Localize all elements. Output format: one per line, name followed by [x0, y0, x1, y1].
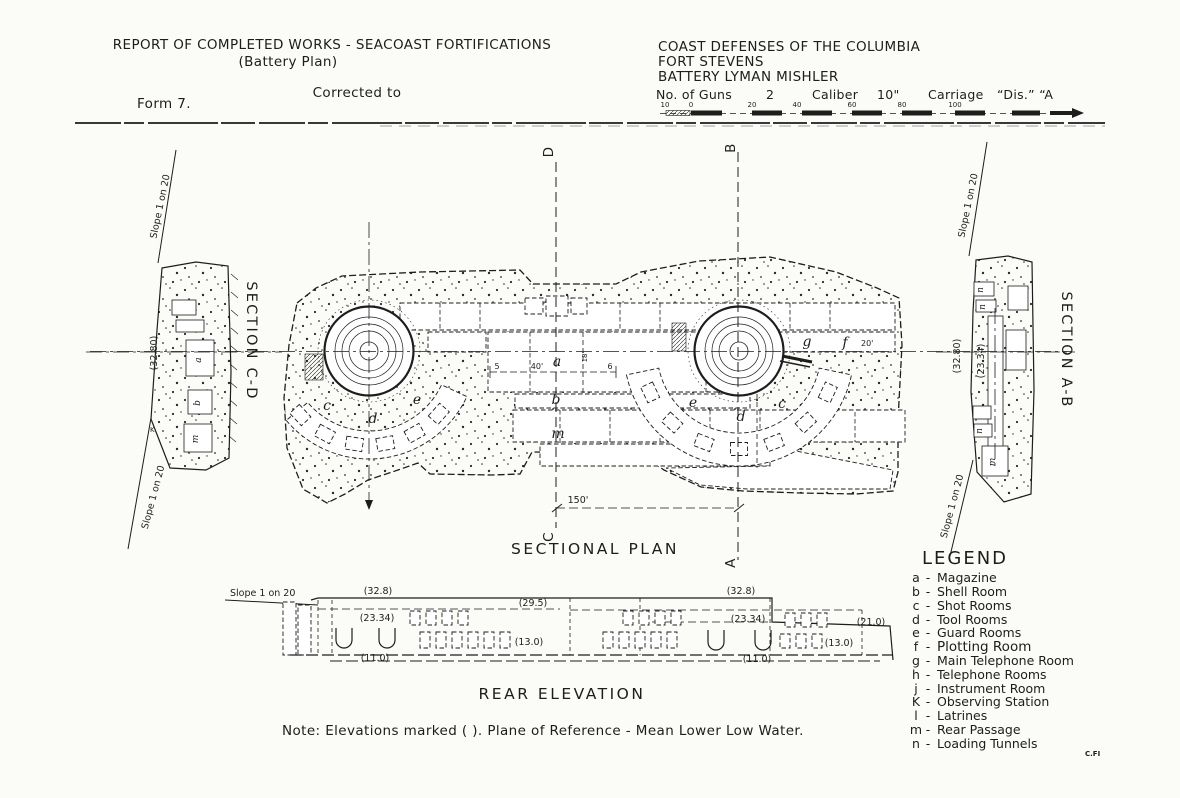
scale-tick-100: 100: [948, 101, 961, 109]
marker-d: D: [541, 147, 557, 158]
rear-elev-21: (21.0): [857, 617, 886, 628]
legend-key-a: a: [912, 570, 920, 585]
legend-key-m: m: [910, 722, 922, 737]
form-header: REPORT OF COMPLETED WORKS - SEACOAST FOR…: [75, 37, 1105, 126]
dim-5-label: 5: [494, 362, 499, 371]
rear-lower-openings: [420, 632, 822, 648]
letter-guard-right: e: [689, 395, 697, 411]
letter-magazine: a: [553, 354, 561, 370]
reference-note: Note: Elevations marked ( ). Plane of Re…: [282, 723, 804, 739]
legend-key-k: K: [912, 694, 921, 709]
rear-elev-11-right: (11.0): [743, 654, 772, 665]
section-ab-elevation-23: (23.34): [976, 344, 987, 379]
form-number: Form 7.: [137, 96, 191, 112]
scale-tick-20: 20: [748, 101, 757, 109]
section-ab-room-n1: n: [976, 287, 986, 293]
guns-caliber-carriage-line: No. of Guns 2 Caliber 10" Carriage “Dis.…: [656, 87, 1053, 102]
legend: LEGEND a - Magazine b - Shell Room c - S…: [910, 548, 1074, 751]
section-cd-title: SECTION C-D: [243, 281, 259, 400]
section-cd-slope-top: Slope 1 on 20: [148, 173, 172, 239]
sectional-plan-drawing: D B C A 150' 5 40' 6 18' a b m c d e e d: [90, 143, 1072, 568]
rear-elevation-drawing: Slope 1 on 20: [225, 586, 893, 703]
section-ab-room-n2: n: [978, 304, 988, 310]
section-ab-title: SECTION A-B: [1058, 292, 1074, 409]
legend-key-c: c: [913, 598, 920, 613]
letter-shot-left: c: [323, 398, 331, 414]
section-ab-room-n3: n: [975, 428, 985, 434]
legend-label-telephone-rooms: Telephone Rooms: [936, 667, 1047, 682]
legend-dash: -: [926, 653, 931, 668]
scale-arrow-icon: [1072, 108, 1084, 118]
legend-label-guard-rooms: Guard Rooms: [937, 625, 1021, 640]
section-cd-room-b: b: [193, 400, 203, 406]
scale-tick-40: 40: [793, 101, 802, 109]
dim-6-label: 6: [607, 362, 612, 371]
rear-elev-2334-right: (23.34): [731, 614, 766, 625]
caliber-value: 10": [877, 87, 900, 102]
scale-tick-60: 60: [848, 101, 857, 109]
caliber-label: Caliber: [812, 87, 859, 102]
legend-label-observing-station: Observing Station: [937, 694, 1049, 709]
legend-dash: -: [926, 722, 931, 737]
battery-name: BATTERY LYMAN MISHLER: [658, 69, 839, 85]
legend-dash: -: [926, 639, 931, 654]
defense-title: COAST DEFENSES OF THE COLUMBIA: [658, 39, 921, 55]
fort-name: FORT STEVENS: [658, 54, 764, 70]
legend-dash: -: [926, 584, 931, 599]
corrected-to-label: Corrected to: [313, 85, 402, 101]
letter-tool-right: d: [737, 409, 746, 425]
section-cd-slope-bottom: Slope 1 on 20: [140, 464, 168, 530]
legend-key-n: n: [912, 736, 920, 751]
sectional-plan-title: SECTIONAL PLAN: [511, 540, 679, 558]
section-cd-room-a: a: [194, 357, 204, 362]
dim-150-label: 150': [568, 495, 589, 506]
dim-40-label: 40': [531, 362, 543, 371]
rear-elev-295: (29.5): [519, 598, 548, 609]
upper-gallery: [400, 303, 895, 330]
scale-bar: 10 0 20 40 60 80 100: [660, 101, 1084, 118]
section-cd-room-m: m: [191, 435, 201, 444]
battery-plan-subtitle: (Battery Plan): [238, 54, 337, 70]
guns-label: No. of Guns: [656, 87, 732, 102]
carriage-label: Carriage: [928, 87, 984, 102]
legend-dash: -: [926, 667, 931, 682]
rear-elev-13-left: (13.0): [515, 637, 544, 648]
rear-slope-label: Slope 1 on 20: [230, 588, 295, 599]
legend-dash: -: [926, 570, 931, 585]
section-cd-k-label: K: [150, 426, 155, 434]
legend-dash: -: [926, 708, 931, 723]
letter-guard-left: e: [413, 392, 421, 408]
marker-b: B: [723, 143, 739, 153]
legend-label-shell-room: Shell Room: [937, 584, 1007, 599]
section-ab-elevation-32: (32.80): [952, 339, 963, 374]
rear-gun-wells: [336, 628, 771, 650]
legend-dash: -: [926, 625, 931, 640]
rear-elev-11-left: (11.0): [361, 653, 390, 664]
letter-tool-left: d: [369, 411, 378, 427]
letter-shell-room: b: [552, 392, 561, 408]
dim-150: 150': [552, 495, 744, 512]
legend-label-shot-rooms: Shot Rooms: [937, 598, 1012, 613]
drawing-sheet: REPORT OF COMPLETED WORKS - SEACOAST FOR…: [0, 0, 1180, 798]
section-cd-drawing: a b m K (32.80) Slope 1 on 20 Slope 1 on…: [86, 150, 282, 549]
rear-elevation-outline: [311, 598, 893, 660]
dim-18-label: 18': [581, 352, 589, 363]
drafter-initials: C.FI: [1085, 750, 1100, 758]
legend-key-h: h: [912, 667, 920, 682]
scale-tick-0: 0: [689, 101, 693, 109]
legend-dash: -: [926, 598, 931, 613]
report-title: REPORT OF COMPLETED WORKS - SEACOAST FOR…: [113, 37, 551, 53]
rear-elev-32-left: (32.8): [364, 586, 393, 597]
stairs-left: [305, 354, 323, 380]
scale-tick-10: 10: [661, 101, 670, 109]
rear-elev-32-right: (32.8): [727, 586, 756, 597]
rear-elev-13-right: (13.0): [825, 638, 854, 649]
marker-a: A: [723, 558, 739, 568]
legend-label-rear-passage: Rear Passage: [937, 722, 1021, 737]
legend-label-latrines: Latrines: [937, 708, 987, 723]
legend-title: LEGEND: [922, 548, 1008, 569]
rear-elev-2334-left: (23.34): [360, 613, 395, 624]
letter-shot-right: c: [778, 396, 786, 412]
legend-label-magazine: Magazine: [937, 570, 997, 585]
axis-arrow-icon: [365, 500, 373, 510]
section-ab-room-m: m: [988, 458, 998, 467]
rear-elevation-title: REAR ELEVATION: [479, 685, 646, 703]
carriage-value: “Dis.” “A: [997, 87, 1053, 102]
letter-rear-passage: m: [551, 426, 564, 442]
legend-key-f: f: [914, 639, 919, 654]
legend-key-l: l: [914, 708, 917, 723]
legend-dash: -: [926, 736, 931, 751]
legend-key-e: e: [912, 625, 920, 640]
legend-label-loading-tunnels: Loading Tunnels: [937, 736, 1037, 751]
guns-value: 2: [766, 87, 774, 102]
battery-plan-drawing: REPORT OF COMPLETED WORKS - SEACOAST FOR…: [0, 0, 1180, 798]
scale-tick-80: 80: [898, 101, 907, 109]
section-ab-drawing: n n n m (32.80) (23.34) Slope 1 on 20 Sl…: [936, 142, 1075, 556]
legend-key-b: b: [912, 584, 920, 599]
stairs-right: [672, 323, 686, 351]
letter-main-telephone: g: [803, 334, 812, 350]
legend-dash: -: [926, 694, 931, 709]
legend-key-g: g: [912, 653, 920, 668]
dim-20-label: 20': [861, 339, 873, 348]
shell-room-corridor: [515, 394, 750, 408]
legend-label-main-telephone-room: Main Telephone Room: [937, 653, 1074, 668]
section-cd-elevation: (32.80): [149, 336, 160, 371]
